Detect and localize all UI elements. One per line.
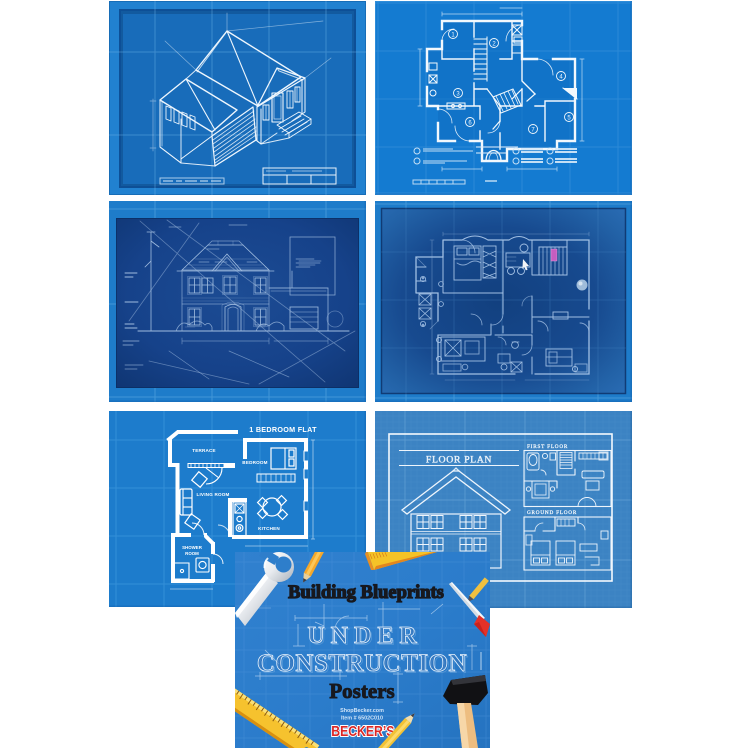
- svg-text:KITCHEN: KITCHEN: [258, 526, 280, 531]
- svg-text:LIVING ROOM: LIVING ROOM: [196, 492, 229, 497]
- svg-text:TERRACE: TERRACE: [192, 448, 216, 453]
- svg-text:Building Blueprints: Building Blueprints: [288, 583, 444, 603]
- svg-text:Item # 6502C010: Item # 6502C010: [341, 716, 383, 722]
- svg-text:BECKER’S: BECKER’S: [331, 723, 394, 739]
- svg-text:Posters: Posters: [329, 679, 394, 703]
- svg-text:BEDROOM: BEDROOM: [242, 460, 267, 465]
- svg-text:GROUND FLOOR: GROUND FLOOR: [527, 510, 577, 516]
- svg-text:UNDER: UNDER: [307, 623, 422, 649]
- svg-text:CONSTRUCTION: CONSTRUCTION: [257, 650, 467, 677]
- svg-text:SHOWER: SHOWER: [182, 545, 203, 550]
- svg-text:FLOOR PLAN: FLOOR PLAN: [426, 455, 492, 466]
- svg-text:ROOM: ROOM: [185, 551, 199, 556]
- svg-text:ShopBecker.com: ShopBecker.com: [340, 708, 384, 714]
- svg-text:1 BEDROOM FLAT: 1 BEDROOM FLAT: [249, 425, 317, 434]
- svg-text:FIRST FLOOR: FIRST FLOOR: [527, 444, 568, 450]
